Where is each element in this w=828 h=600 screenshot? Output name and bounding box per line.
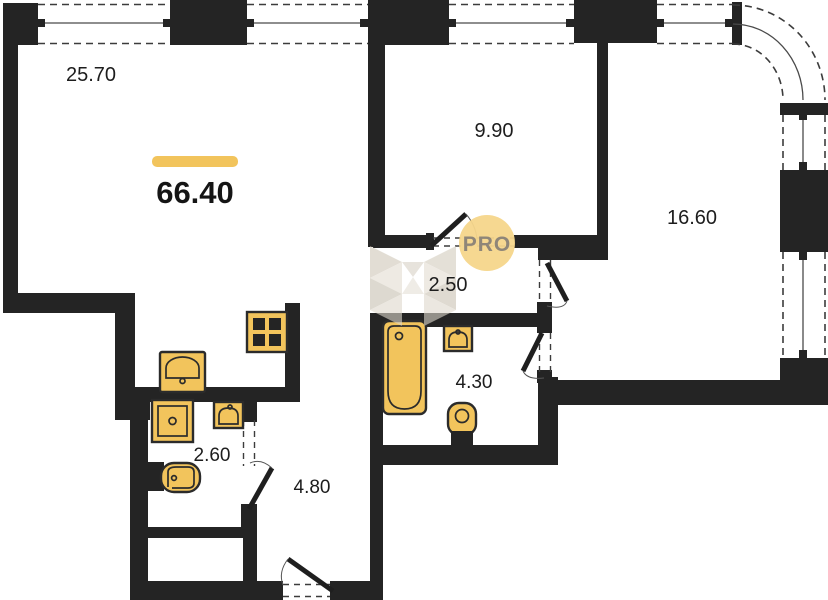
curved-corner-glazing [733,5,825,100]
stove-icon [247,312,287,352]
entrance-door [281,559,333,597]
wc-sink-icon [214,402,243,428]
window-5 [783,112,825,170]
window-4 [656,5,733,44]
washing-machine-icon [152,400,193,442]
window-2 [246,5,368,44]
wc-toilet-icon [148,462,200,492]
room-label-corridor: 2.50 [429,274,468,296]
window-3 [448,5,574,44]
bathtub-icon [383,321,426,414]
pro-badge: PRO [459,215,515,271]
room-label-1660: 16.60 [667,207,717,229]
room-label-hallway: 4.80 [294,477,331,498]
pro-badge-label: PRO [463,233,512,256]
room-label-bathroom: 4.30 [456,372,493,393]
kitchen-sink-icon [160,352,205,397]
total-area-block: 66.40 [152,156,238,210]
room-label-wc: 2.60 [194,445,231,466]
window-6 [783,252,825,358]
floor-plan-drawing: PRO 25.70 9.90 16.60 2.50 4.30 2.60 4.80… [0,0,828,600]
window-1 [37,5,171,44]
door-corridor-to-room1660 [540,260,568,307]
bathroom-toilet-icon [448,403,476,446]
room-label-990: 9.90 [475,120,514,142]
door-wc [244,420,273,509]
room-label-living: 25.70 [66,64,116,86]
total-area-value: 66.40 [156,175,234,210]
total-area-underline [152,156,238,167]
floor-plan: PRO 25.70 9.90 16.60 2.50 4.30 2.60 4.80… [0,0,828,600]
bathroom-sink-icon [444,326,472,351]
walls [3,0,828,600]
